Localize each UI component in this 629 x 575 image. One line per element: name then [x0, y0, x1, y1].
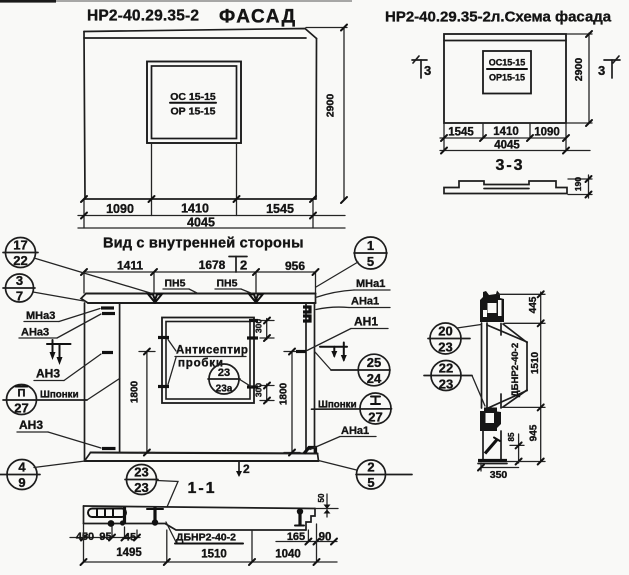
svg-text:Антисептир: Антисептир	[176, 345, 248, 357]
svg-text:1678: 1678	[199, 258, 226, 272]
svg-text:1800: 1800	[130, 380, 141, 403]
svg-text:3: 3	[598, 63, 605, 78]
svg-text:ОР 15-15: ОР 15-15	[171, 106, 216, 118]
svg-text:45: 45	[124, 532, 136, 544]
svg-text:445: 445	[528, 296, 539, 313]
svg-text:1545: 1545	[448, 127, 474, 139]
svg-text:27: 27	[14, 401, 28, 416]
svg-text:5: 5	[367, 254, 374, 269]
svg-text:2900: 2900	[573, 58, 585, 82]
svg-text:МНа1: МНа1	[356, 278, 385, 290]
svg-text:165: 165	[287, 531, 305, 543]
svg-text:ФАСАД: ФАСАД	[219, 7, 297, 28]
svg-text:2: 2	[243, 462, 250, 476]
svg-text:2900: 2900	[325, 94, 337, 118]
svg-text:1410: 1410	[493, 126, 519, 138]
svg-text:25: 25	[367, 355, 381, 370]
svg-text:ДБНР2-40-2: ДБНР2-40-2	[176, 532, 236, 544]
svg-text:АНа1: АНа1	[341, 425, 369, 437]
svg-text:22: 22	[439, 361, 453, 376]
svg-text:1411: 1411	[117, 259, 143, 273]
svg-text:945: 945	[529, 424, 540, 441]
svg-text:23а: 23а	[216, 384, 233, 395]
svg-text:23: 23	[439, 377, 453, 392]
svg-text:1: 1	[367, 238, 374, 253]
svg-text:ОС 15-15: ОС 15-15	[170, 91, 216, 103]
svg-text:50: 50	[317, 493, 326, 502]
svg-text:95: 95	[99, 531, 111, 543]
svg-text:23: 23	[218, 367, 230, 379]
svg-text:АН3: АН3	[19, 418, 43, 432]
svg-text:1410: 1410	[181, 202, 209, 216]
svg-text:Вид с внутренней стороны: Вид с внутренней стороны	[103, 236, 304, 252]
svg-text:ПН5: ПН5	[217, 278, 238, 290]
svg-text:МНа3: МНа3	[26, 310, 55, 322]
svg-text:1510: 1510	[530, 351, 541, 374]
svg-text:27: 27	[368, 410, 382, 425]
svg-text:2: 2	[240, 258, 247, 273]
svg-text:пробки: пробки	[178, 358, 224, 370]
svg-text:АНа3: АНа3	[21, 327, 49, 339]
svg-text:1090: 1090	[106, 202, 134, 216]
svg-text:22: 22	[13, 253, 27, 268]
svg-text:4045: 4045	[494, 140, 520, 152]
svg-text:23: 23	[134, 465, 148, 480]
svg-text:ПН5: ПН5	[165, 278, 186, 290]
svg-text:1090: 1090	[534, 127, 560, 139]
svg-text:300: 300	[254, 319, 264, 333]
svg-text:1495: 1495	[116, 547, 142, 559]
svg-text:1040: 1040	[275, 549, 301, 561]
svg-text:НР2-40.29.35-2: НР2-40.29.35-2	[87, 8, 199, 25]
svg-text:П: П	[18, 388, 26, 400]
svg-text:3: 3	[16, 273, 23, 288]
svg-text:23: 23	[438, 340, 452, 355]
svg-text:4045: 4045	[187, 216, 215, 230]
svg-text:1510: 1510	[201, 549, 227, 561]
svg-text:85: 85	[507, 432, 516, 441]
svg-text:450: 450	[76, 531, 94, 543]
svg-text:190: 190	[573, 177, 583, 191]
svg-text:3: 3	[424, 63, 431, 78]
svg-text:9: 9	[18, 475, 25, 490]
svg-text:2: 2	[367, 460, 374, 475]
svg-text:АН1: АН1	[354, 315, 378, 329]
svg-text:ДБНР2-40-2: ДБНР2-40-2	[510, 343, 521, 397]
svg-text:1800: 1800	[279, 382, 290, 405]
svg-text:АН3: АН3	[36, 367, 60, 381]
svg-text:НР2-40.29.35-2л.Схема фасада: НР2-40.29.35-2л.Схема фасада	[385, 9, 612, 26]
svg-text:350: 350	[490, 469, 508, 481]
svg-text:3-3: 3-3	[495, 157, 524, 174]
svg-text:ОС15-15: ОС15-15	[489, 58, 526, 68]
svg-text:Шпонки: Шпонки	[40, 390, 79, 401]
svg-text:24: 24	[367, 371, 382, 386]
svg-text:ОР15-15: ОР15-15	[489, 73, 525, 83]
svg-text:АНа1: АНа1	[351, 296, 379, 308]
svg-text:956: 956	[285, 259, 305, 273]
svg-text:20: 20	[438, 324, 452, 339]
svg-text:17: 17	[13, 238, 27, 253]
svg-text:4: 4	[18, 460, 26, 475]
svg-text:23: 23	[134, 480, 148, 495]
svg-text:1545: 1545	[266, 202, 294, 216]
svg-text:300: 300	[254, 383, 264, 397]
svg-text:5: 5	[367, 475, 374, 490]
svg-text:90: 90	[319, 532, 332, 544]
svg-text:1-1: 1-1	[187, 480, 216, 497]
svg-text:7: 7	[16, 289, 23, 304]
